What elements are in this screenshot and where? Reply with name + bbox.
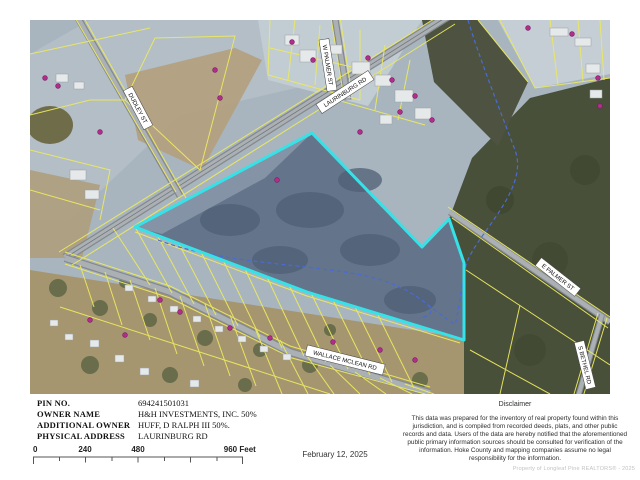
tree-cluster [514, 334, 546, 366]
disclaimer-body: This data was prepared for the inventory… [401, 415, 629, 463]
tree-cluster [486, 186, 514, 214]
watermark: Property of Longleaf Pine REALTORS® - 20… [513, 466, 635, 472]
pin-label: PIN NO. [37, 398, 138, 409]
info-row-address: PHYSICAL ADDRESS LAURINBURG RD [37, 431, 257, 442]
scale-bar-line [33, 456, 249, 465]
scale-tick-240: 240 [78, 445, 91, 454]
scale-numbers: 0 240 480 960 Feet [33, 445, 293, 455]
owner-label: OWNER NAME [37, 409, 138, 420]
additional-owner-label: ADDITIONAL OWNER [37, 420, 138, 431]
scale-tick-960: 960 Feet [224, 445, 256, 454]
owner-value: H&H INVESTMENTS, INC. 50% [138, 409, 257, 420]
pin-value: 694241501031 [138, 398, 189, 409]
scale-tick-0: 0 [33, 445, 37, 454]
map-canvas: : [30, 20, 610, 394]
address-label: PHYSICAL ADDRESS [37, 431, 138, 442]
info-row-pin: PIN NO. 694241501031 [37, 398, 257, 409]
map-date: February 12, 2025 [270, 450, 400, 459]
tree-cluster [570, 155, 600, 185]
property-info: PIN NO. 694241501031 OWNER NAME H&H INVE… [37, 398, 257, 442]
disclaimer: Disclaimer This data was prepared for th… [401, 401, 629, 463]
address-value: LAURINBURG RD [138, 431, 208, 442]
scale-tick-480: 480 [131, 445, 144, 454]
info-row-owner: OWNER NAME H&H INVESTMENTS, INC. 50% [37, 409, 257, 420]
additional-owner-value: HUFF, D RALPH III 50%. [138, 420, 230, 431]
disclaimer-title: Disclaimer [401, 401, 629, 408]
info-row-additional-owner: ADDITIONAL OWNER HUFF, D RALPH III 50%. [37, 420, 257, 431]
aerial-parcel-map: : [30, 20, 610, 394]
scale-bar: 0 240 480 960 Feet [33, 445, 293, 467]
